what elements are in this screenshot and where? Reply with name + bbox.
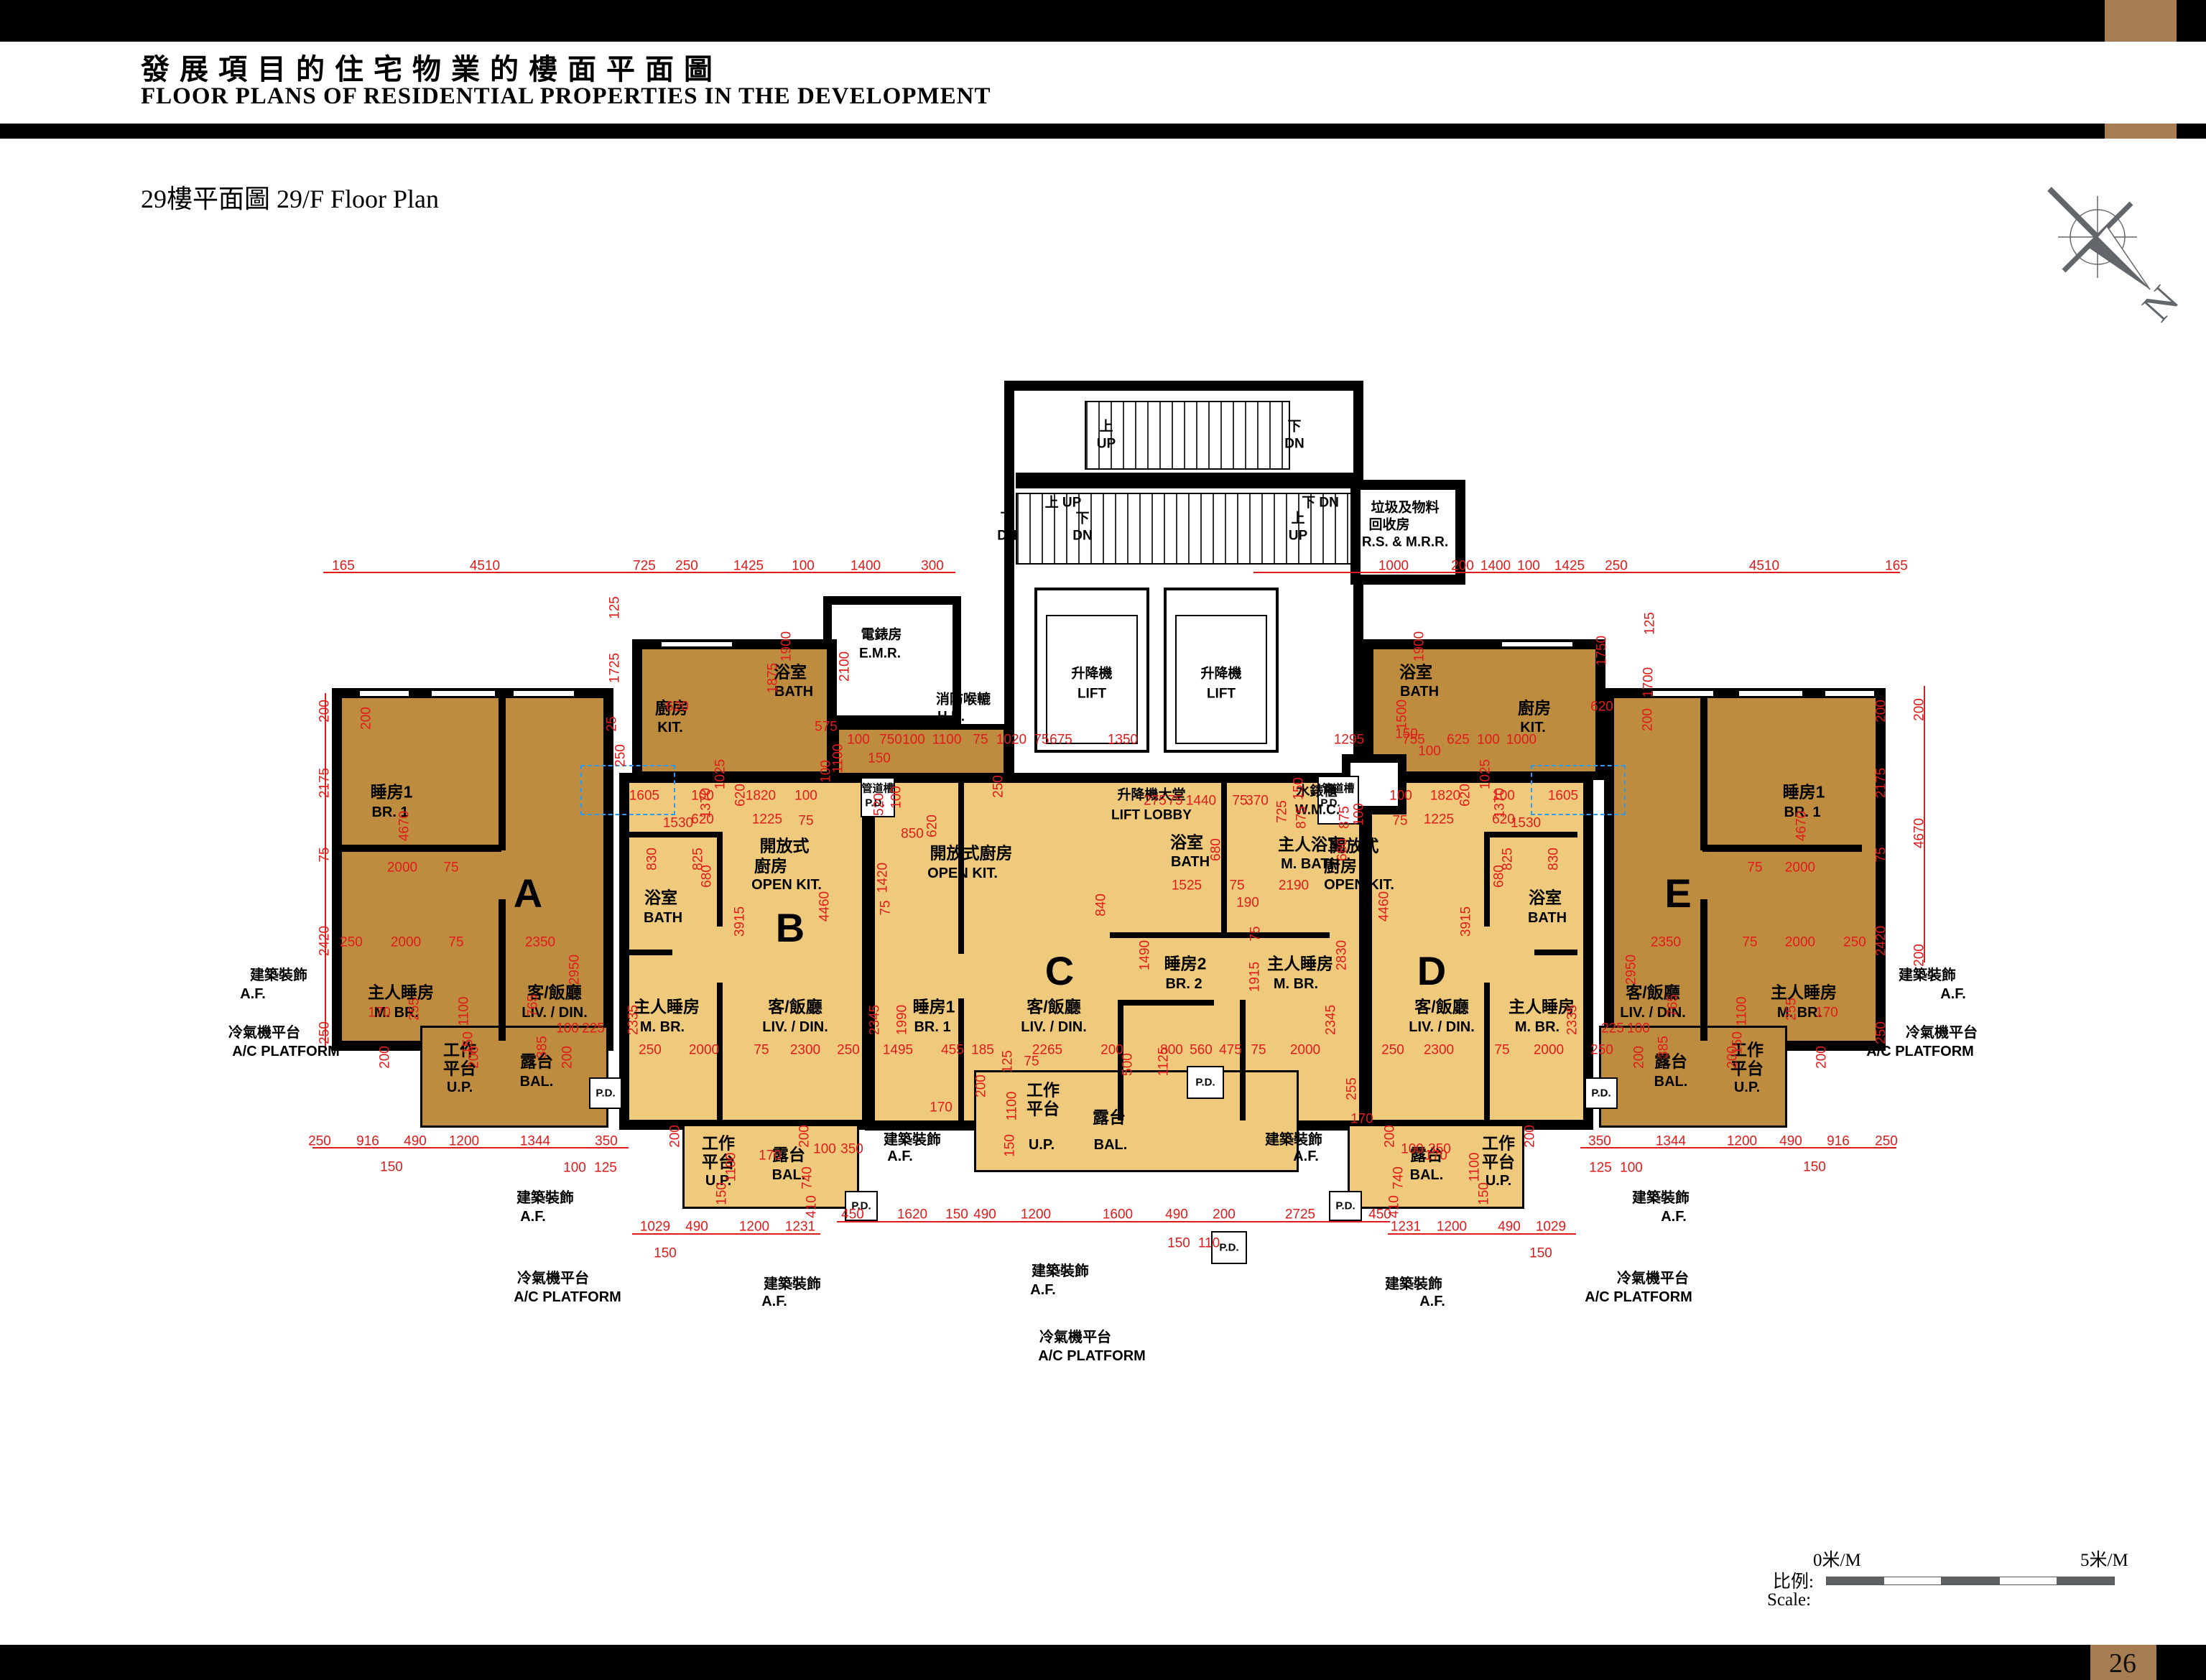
callout-label: A/C PLATFORM: [514, 1290, 621, 1304]
page: { "header": { "title_cn": "發展項目的住宅物業的樓面平…: [0, 0, 2206, 1680]
dimension-label: 490: [1779, 1135, 1802, 1148]
dimension-label: 75: [448, 936, 463, 950]
room-label: LIV. / DIN.: [762, 1020, 828, 1034]
room-label: M. BR.: [1515, 1020, 1560, 1034]
page-number: 26: [2109, 1648, 2136, 1679]
callout-label: A.F.: [240, 987, 266, 1001]
dimension-label: 100: [1477, 733, 1500, 747]
dimension-label: 725: [1276, 800, 1289, 823]
callout-label: A.F.: [887, 1149, 913, 1164]
dimension-label: 100: [1401, 1143, 1424, 1156]
dimension-label: 125: [1644, 612, 1657, 635]
dimension-label: 620: [1459, 784, 1473, 807]
dimension-label: 1295: [1334, 733, 1364, 747]
room-label: BAL.: [1654, 1075, 1688, 1089]
wall: [1118, 1000, 1214, 1006]
dimension-label: 75: [973, 733, 988, 747]
core-label: UP: [1097, 437, 1116, 451]
dimension-label: 3915: [1460, 906, 1473, 937]
dimension-label: 916: [356, 1135, 379, 1148]
room-label: LIV. / DIN.: [1409, 1020, 1475, 1034]
window: [1738, 690, 1803, 697]
room-label: 睡房1: [1783, 784, 1825, 801]
room-label: OPEN KIT.: [927, 866, 998, 881]
dimension-label: 200: [379, 1046, 392, 1069]
dimension-label: 100: [847, 733, 870, 747]
dimension-label: 2420: [318, 926, 332, 956]
dimension-label: 1900: [780, 631, 794, 662]
dimension-label: 255: [1785, 998, 1799, 1021]
room-label: 睡房1: [913, 999, 955, 1016]
callout-label: 建築裝飾: [250, 968, 307, 983]
room-label: 主人睡房: [1267, 956, 1333, 973]
dimension-label: 250: [614, 744, 628, 767]
room-label: 露台: [1093, 1110, 1126, 1126]
dimension-label: 150: [462, 1031, 476, 1054]
wall: [499, 698, 506, 850]
dimension-label: 1605: [1548, 789, 1578, 803]
dimension-label: 750: [879, 733, 902, 747]
dimension-label: 75: [318, 847, 332, 862]
dimension-label: 1605: [629, 789, 659, 803]
dimension-label: 350: [840, 1143, 863, 1156]
core-label: LIFT LOBBY: [1111, 809, 1192, 822]
room-label: BATH: [1171, 855, 1210, 869]
dimension-label: 1495: [883, 1044, 913, 1057]
callout-label: 冷氣機平台: [517, 1271, 589, 1286]
callout-label: A.F.: [1661, 1210, 1687, 1224]
dimension-label: 1025: [1479, 759, 1493, 789]
dimension-label: 75: [1251, 1044, 1266, 1057]
dimension-label: 620: [926, 815, 940, 837]
stair-flight-upper: [1085, 401, 1290, 470]
dimension-label: 2190: [1279, 879, 1309, 893]
dimension-label: 75: [1392, 815, 1407, 828]
callout-label: 建築裝飾: [884, 1133, 941, 1147]
scale-segment: [2057, 1577, 2114, 1584]
room-label: U.P.: [1734, 1080, 1760, 1095]
dimension-label: 1875: [766, 663, 780, 693]
dimension-label: 100: [794, 789, 817, 803]
room-label: M. BR.: [640, 1020, 685, 1034]
core-label: 上: [1099, 420, 1113, 434]
callout-label: 建築裝飾: [516, 1191, 574, 1205]
dimension-label: 250: [308, 1135, 331, 1148]
wall: [629, 832, 723, 837]
dimension-label: 830: [646, 848, 659, 871]
dimension-label: 1915: [1248, 962, 1262, 992]
dimension-label: 830: [1547, 848, 1561, 871]
dimension-label: 1440: [1186, 794, 1216, 808]
dimension-label: 170: [368, 1006, 391, 1020]
core-label: 下 DN: [1302, 496, 1339, 510]
dimension-label: 2000: [689, 1044, 719, 1057]
dimension-label: 1425: [1554, 560, 1585, 573]
wall: [717, 832, 723, 927]
ac-plinth-outline: [580, 765, 675, 815]
dimension-label: 225: [1601, 1022, 1624, 1036]
dimension-label: 3915: [733, 906, 747, 937]
dimension-label: 625: [1447, 733, 1470, 747]
dimension-label: 125: [594, 1161, 617, 1175]
room-label: KIT.: [657, 720, 683, 735]
callout-label: A/C PLATFORM: [232, 1044, 340, 1059]
core-label: E.M.R.: [859, 647, 901, 661]
dimension-label: 2350: [1651, 936, 1681, 950]
dimension-label: 455: [941, 1044, 964, 1057]
dimension-label: 100: [813, 1143, 836, 1156]
dimension-label: 1225: [1424, 813, 1454, 827]
dimension-label: 165: [1885, 560, 1908, 573]
callout-label: 冷氣機平台: [1906, 1026, 1978, 1040]
dimension-label: 1700: [1642, 667, 1656, 697]
wall: [1700, 698, 1707, 850]
dimension-label: 1000: [1378, 560, 1409, 573]
wall: [1110, 932, 1330, 938]
dimension-label: 1370: [1493, 788, 1507, 818]
core-label: LIFT: [1207, 687, 1236, 701]
dimension-label: 275: [1144, 794, 1167, 808]
dimension-label: 350: [595, 1135, 618, 1148]
room-label: OPEN KIT.: [1324, 878, 1394, 892]
dimension-label: 75: [1747, 861, 1762, 875]
dimension-label: 1820: [746, 789, 776, 803]
dimension-label: 575: [815, 720, 838, 734]
dimension-label: 4670: [398, 811, 412, 841]
wall: [1240, 1000, 1246, 1120]
dimension-label: 25: [606, 716, 619, 731]
dimension-label: 1000: [1506, 733, 1537, 747]
duct-label: P.D.: [1195, 1077, 1215, 1088]
callout-label: A.F.: [1940, 987, 1966, 1001]
room-label: 主人睡房: [368, 985, 434, 1001]
core-label: LIFT: [1077, 687, 1106, 701]
dimension-label: 150: [945, 1208, 968, 1222]
dimension-label: 490: [1498, 1220, 1521, 1234]
dimension-label: 725: [633, 560, 656, 573]
dimension-label: 450: [1368, 1208, 1391, 1222]
dimension-label: 75: [1875, 847, 1888, 862]
dimension-label: 620: [666, 700, 689, 714]
dimension-label: 1400: [851, 560, 881, 573]
window: [513, 690, 575, 697]
room-label: 浴室: [1529, 890, 1562, 906]
core-label: DN: [1284, 437, 1304, 451]
core-label: 上: [1291, 512, 1304, 526]
unit-a-label: A: [514, 873, 542, 914]
unit-c-balcony: [974, 1070, 1299, 1172]
dimension-label: 75: [1742, 936, 1757, 950]
dimension-label: 840: [1095, 894, 1108, 916]
dimension-label: 1990: [896, 1005, 909, 1035]
dimension-label: 490: [1165, 1208, 1188, 1222]
dimension-label: 75: [754, 1044, 769, 1057]
duct-label: P.D.: [1335, 1201, 1355, 1212]
dimension-label: 1344: [1656, 1135, 1686, 1148]
dimension-label: 1525: [1172, 879, 1202, 893]
scale-end-value: 5米/M: [2080, 1546, 2128, 1572]
dimension-label: 1200: [1437, 1220, 1467, 1234]
dimension-label: 1100: [458, 997, 471, 1026]
room-label: 平台: [1482, 1154, 1515, 1171]
dimension-label: 190: [1236, 896, 1259, 910]
dimension-label: 200: [1213, 1208, 1236, 1222]
dimension-label: 2345: [1325, 1005, 1338, 1035]
dimension-label: 165: [332, 560, 355, 573]
wall: [1484, 832, 1577, 837]
dimension-label: 1350: [1108, 733, 1138, 747]
core-label: UP: [1289, 529, 1307, 543]
dimension-label: 2175: [318, 768, 332, 798]
dimension-label: 200: [1913, 698, 1927, 721]
scale-label-chinese: 比例:: [1773, 1567, 1814, 1593]
callout-label: A.F.: [1293, 1149, 1319, 1164]
dimension-label: 200: [1384, 1125, 1397, 1148]
room-label: 浴室: [644, 890, 677, 906]
dimension-label: 680: [1210, 838, 1223, 861]
scale-segment: [1999, 1577, 2057, 1584]
dimension-label: 1530: [1511, 817, 1541, 830]
dimension-label: 200: [1633, 1046, 1646, 1069]
dimension-label: 75: [879, 900, 893, 915]
core-label: DN: [1072, 529, 1092, 543]
dimension-label: 620: [734, 784, 748, 807]
dimension-label: 2000: [391, 936, 421, 950]
callout-label: 建築裝飾: [764, 1277, 821, 1291]
window: [1825, 690, 1875, 697]
dimension-label: 200: [1641, 708, 1655, 731]
dimension-label: 75: [1249, 926, 1263, 941]
dimension-label: 490: [685, 1220, 708, 1234]
room-label: 睡房1: [371, 784, 413, 801]
dimension-label: 200: [798, 1125, 812, 1148]
callout-label: A/C PLATFORM: [1038, 1349, 1146, 1363]
dimension-label: 680: [1336, 838, 1350, 861]
callout-label: 建築裝飾: [1032, 1264, 1089, 1278]
dimension-label: 4670: [1913, 818, 1927, 848]
callout-label: A.F.: [1419, 1294, 1445, 1309]
room-label: 主人睡房: [634, 999, 700, 1016]
dimension-label: 170: [930, 1101, 953, 1115]
dimension-label: 250: [992, 775, 1006, 798]
dimension-label: 75: [1167, 794, 1182, 808]
wall: [1484, 832, 1490, 927]
dimension-label: 350: [1588, 1135, 1611, 1148]
window: [661, 641, 733, 647]
callout-label: A/C PLATFORM: [1866, 1044, 1974, 1059]
wall: [1700, 899, 1707, 1041]
dimension-label: 2000: [1290, 1044, 1320, 1057]
core-label: H.R.: [937, 710, 965, 724]
room-label: 睡房2: [1164, 956, 1207, 973]
dimension-label: 450: [841, 1208, 864, 1222]
core-label: 消防喉轆: [936, 693, 991, 707]
dimension-label: 1029: [640, 1220, 670, 1234]
dimension-label: 170: [759, 1149, 782, 1163]
window: [1652, 690, 1714, 697]
dimension-label: 75: [798, 815, 813, 828]
dimension-label: 200: [1451, 560, 1474, 573]
dimension-label: 370: [1246, 794, 1269, 808]
dimension-label: 250: [675, 560, 698, 573]
dimension-label: 1530: [663, 817, 693, 830]
room-label: 廚房: [1518, 700, 1551, 717]
unit-d-label: D: [1417, 951, 1446, 991]
duct-label: P.D.: [1591, 1088, 1611, 1099]
callout-label: 冷氣機平台: [1039, 1330, 1111, 1345]
dimension-label: 100: [1620, 1161, 1643, 1175]
room-label: BATH: [1400, 684, 1439, 699]
dimension-label: 2950: [568, 955, 582, 985]
window: [431, 690, 496, 697]
core-label: 升降機: [1200, 667, 1241, 681]
window: [359, 690, 409, 697]
dimension-label: 2725: [1285, 1208, 1315, 1222]
dimension-label: 100: [902, 733, 925, 747]
dimension-label: 2420: [1875, 926, 1888, 956]
dimension-label: 100: [1627, 1022, 1650, 1036]
dimension-label: 125: [1589, 1161, 1612, 1175]
dimension-label: 385: [1657, 1036, 1671, 1059]
room-label: 客/飯廳: [1414, 999, 1468, 1016]
dimension-label: 1425: [733, 560, 764, 573]
dimension-label: 620: [1590, 700, 1613, 714]
dimension-label: 2300: [790, 1044, 820, 1057]
dimension-label: 100: [1353, 803, 1366, 826]
room-label: 廚房: [754, 858, 787, 875]
room-label: BAL.: [520, 1075, 554, 1089]
dimension-line-left: [325, 693, 326, 1049]
dimension-label: 125: [1001, 1050, 1015, 1073]
dimension-label: 170: [1350, 1113, 1373, 1126]
dimension-label: 150: [868, 752, 891, 766]
dimension-label: 4670: [1795, 811, 1809, 841]
dimension-label: 740: [1392, 1166, 1406, 1189]
room-label: 開放式廚房: [930, 845, 1013, 862]
callout-label: 建築裝飾: [1265, 1133, 1322, 1147]
dimension-label: 75: [443, 861, 458, 875]
room-label: LIV. / DIN.: [1021, 1020, 1087, 1034]
room-label: BR. 1: [914, 1020, 950, 1034]
dimension-label: 2335: [627, 1005, 641, 1035]
dimension-label: 150: [1167, 1237, 1190, 1250]
core-label: 電錶房: [861, 628, 902, 642]
callout-label: 建築裝飾: [1899, 968, 1956, 983]
dimension-label: 1400: [1480, 560, 1511, 573]
dimension-label: 4510: [470, 560, 500, 573]
dimension-label: 200: [561, 1046, 575, 1069]
dimension-label: 2300: [1424, 1044, 1454, 1057]
scale-start-value: 0米/M: [1813, 1546, 1861, 1572]
room-label: 浴室: [1170, 835, 1203, 851]
dimension-label: 1620: [897, 1208, 927, 1222]
dimension-label: 1490: [1139, 940, 1152, 970]
core-label: 升降機: [1071, 667, 1112, 681]
unit-c-label: C: [1045, 951, 1074, 991]
dimension-label: 250: [1605, 560, 1628, 573]
dimension-label: 75: [1034, 733, 1049, 747]
dimension-label: 75: [1229, 879, 1244, 893]
dimension-label: 150: [1292, 777, 1306, 800]
callout-label: A.F.: [761, 1294, 787, 1309]
unit-b-label: B: [776, 908, 805, 948]
dimension-label: 1100: [725, 1153, 738, 1182]
dimension-label: 1200: [449, 1135, 479, 1148]
room-label: BAL.: [1094, 1138, 1128, 1152]
callout-label: 冷氣機平台: [228, 1026, 300, 1040]
dimension-label: 500: [1121, 1053, 1135, 1076]
room-label: 主人睡房: [1771, 985, 1837, 1001]
dimension-label: 475: [1219, 1044, 1242, 1057]
scale-segment: [1883, 1577, 1942, 1584]
dimension-label: 875: [1295, 806, 1309, 829]
scale-bar: [1826, 1577, 2115, 1585]
dimension-label: 110: [1198, 1237, 1220, 1250]
room-label: BR. 2: [1165, 977, 1202, 991]
room-label: 客/飯廳: [768, 999, 822, 1016]
dimension-label: 2000: [1785, 861, 1815, 875]
dimension-label: 150: [654, 1247, 677, 1261]
dimension-label: 150: [1731, 1031, 1745, 1054]
dimension-label: 100: [792, 560, 815, 573]
room-label: BATH: [1528, 911, 1567, 925]
room-label: 浴室: [1399, 664, 1432, 681]
dimension-label: 100: [1517, 560, 1540, 573]
room-label: U.P.: [1029, 1138, 1055, 1152]
dimension-label: 1225: [752, 813, 782, 827]
room-label: BAL.: [1410, 1168, 1444, 1182]
room-label: 開放式: [760, 838, 810, 855]
dimension-label: 1725: [608, 653, 622, 683]
dimension-label: 1025: [714, 759, 728, 789]
dimension-label: 250: [1590, 1044, 1613, 1057]
stair-mid-landing: [1016, 473, 1353, 488]
dimension-label: 2830: [1335, 940, 1349, 970]
duct-label: 管道槽: [1322, 784, 1354, 794]
dimension-label: 1500: [1396, 700, 1409, 730]
dimension-label: 225: [582, 1022, 605, 1036]
dimension-label: 2175: [1875, 768, 1888, 798]
callout-label: A.F.: [1030, 1283, 1056, 1297]
dimension-label: 410: [805, 1195, 819, 1218]
dimension-label: 1200: [1021, 1208, 1051, 1222]
dimension-label: 100: [890, 786, 904, 809]
dimension-label: 520: [873, 793, 886, 816]
dimension-label: 1200: [1727, 1135, 1757, 1148]
dimension-label: 1029: [1536, 1220, 1566, 1234]
room-label: 工作: [702, 1136, 735, 1152]
core-label: R.S. & M.R.R.: [1362, 536, 1448, 549]
room-label: BATH: [644, 911, 682, 925]
dimension-label: 490: [973, 1208, 996, 1222]
dimension-label: 1231: [785, 1220, 815, 1234]
dimension-label: 1750: [1595, 636, 1609, 666]
dimension-label: 675: [1049, 733, 1072, 747]
dimension-label: 250: [1843, 936, 1866, 950]
dimension-label: 150: [715, 1182, 729, 1205]
dimension-label: 100: [563, 1161, 586, 1175]
dimension-label: 4460: [1378, 891, 1391, 922]
wall: [1534, 950, 1577, 955]
dimension-label: 200: [360, 707, 374, 730]
dimension-label: 1420: [876, 863, 890, 893]
dimension-label: 1100: [1468, 1153, 1482, 1182]
wall: [342, 845, 501, 852]
dimension-label: 150: [1004, 1134, 1017, 1157]
dimension-label: 255: [1345, 1077, 1359, 1100]
dimension-label: 300: [921, 560, 944, 573]
wall: [499, 899, 506, 1041]
